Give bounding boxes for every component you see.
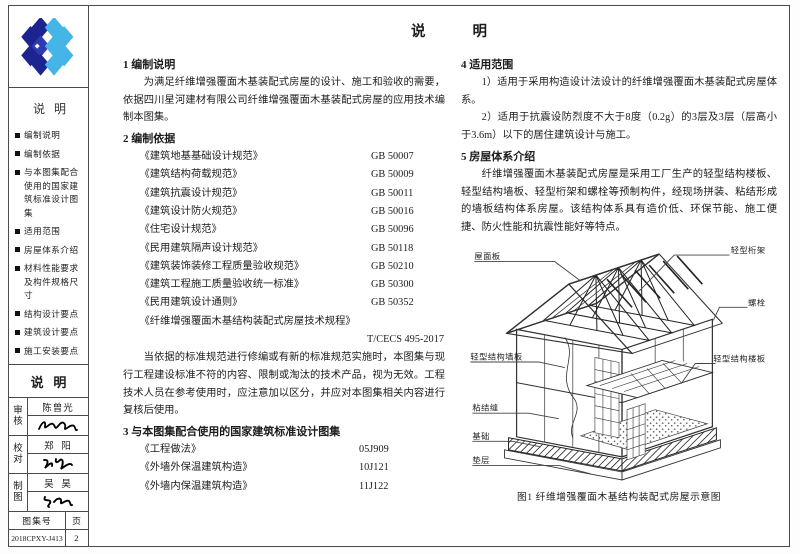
- atlas-number-block: 图集号 页 2018CPXY-J413 2: [9, 512, 88, 546]
- standard-code: GB 50011: [371, 185, 445, 203]
- atlas-number: 2018CPXY-J413: [9, 530, 66, 546]
- toc-item: 适用范围: [15, 225, 85, 239]
- toc-list: 编制说明 编制依据 与本图集配合使用的国家建筑标准设计图集 适用范围 房屋体系介…: [15, 129, 85, 358]
- proofreader-signature: [28, 454, 88, 473]
- standard-code: GB 50007: [371, 148, 445, 166]
- title-block-row-proofreader: 校对 郑 阳: [9, 436, 88, 474]
- standard-code: GB 50016: [371, 203, 445, 221]
- atlas-row-item: 《外墙内保温建筑构造》11J122: [123, 478, 445, 496]
- title-block-row-drafter: 制图 吴 昊: [9, 474, 88, 512]
- section-2-heading: 2 编制依据: [123, 130, 445, 146]
- reference-atlas-list: 《工程做法》05J909 《外墙外保温建筑构造》10J121 《外墙内保温建筑构…: [123, 441, 445, 496]
- wall-stud-grid: [627, 403, 645, 459]
- standard-name: 《民用建筑设计通则》: [123, 294, 242, 312]
- page-title: 说 明: [123, 20, 777, 41]
- section-1-heading: 1 编制说明: [123, 56, 445, 72]
- standard-row: 《建筑抗震设计规范》GB 50011: [123, 185, 445, 203]
- toc-title: 说 明: [15, 100, 85, 117]
- standard-code: GB 50352: [371, 294, 445, 312]
- standard-name: 《民用建筑隔声设计规范》: [123, 240, 263, 258]
- label-foundation: 基础: [472, 430, 489, 440]
- atlas-code: 10J121: [359, 459, 445, 477]
- drafter-name: 吴 昊: [28, 474, 88, 492]
- atlas-code: 05J909: [359, 441, 445, 459]
- handwritten-signature-icon: [40, 494, 76, 510]
- house-diagram-figure: 屋面板 轻型结构墙板 粘结缝 基础 垫层 轻型桁架: [461, 241, 777, 503]
- standard-row: 《民用建筑设计通则》GB 50352: [123, 294, 445, 312]
- toc-item: 房屋体系介绍: [15, 244, 85, 258]
- standard-name: 《住宅设计规范》: [123, 221, 222, 239]
- section-4-heading: 4 适用范围: [461, 56, 777, 72]
- standard-code: GB 50118: [371, 240, 445, 258]
- label-bedding: 垫层: [472, 455, 489, 465]
- atlas-header-row: 图集号 页: [9, 512, 88, 529]
- standard-code: T/CECS 495-2017: [123, 331, 445, 349]
- standard-code: GB 50096: [371, 221, 445, 239]
- title-block-row-reviewer: 审核 陈曾光: [9, 398, 88, 436]
- main-content: 说 明 1 编制说明 为满足纤维增强覆面木基装配式房屋的设计、施工和验收的需要，…: [89, 6, 789, 546]
- label-bolt: 螺栓: [748, 297, 765, 307]
- standard-code: GB 50300: [371, 276, 445, 294]
- standard-code: GB 50210: [371, 258, 445, 276]
- toc-item: 与本图集配合使用的国家建筑标准设计图集: [15, 166, 85, 220]
- standard-name: 《建筑设计防火规范》: [123, 203, 242, 221]
- section-5-heading: 5 房屋体系介绍: [461, 148, 777, 164]
- toc-item: 编制说明: [15, 129, 85, 143]
- standard-name: 《建筑地基基础设计规范》: [123, 148, 263, 166]
- atlas-row-item: 《工程做法》05J909: [123, 441, 445, 459]
- gable-edge: [507, 284, 633, 353]
- standard-row: 《住宅设计规范》GB 50096: [123, 221, 445, 239]
- toc-item: 建筑设计要点: [15, 326, 85, 340]
- handwritten-signature-icon: [36, 418, 80, 434]
- atlas-value-row: 2018CPXY-J413 2: [9, 529, 88, 546]
- page-number: 2: [66, 530, 88, 546]
- standard-row: 《建筑结构荷载规范》GB 50009: [123, 166, 445, 184]
- role-label: 审核: [9, 398, 28, 435]
- drafter-signature: [28, 492, 88, 511]
- page-label: 页: [66, 512, 88, 529]
- standard-row: 《建筑设计防火规范》GB 50016: [123, 203, 445, 221]
- title-block: 审核 陈曾光 校对 郑 阳 制图 吴 昊: [9, 398, 88, 546]
- sheet-title-stamp: 说 明: [9, 364, 88, 398]
- standard-row: 《建筑工程施工质量验收统一标准》GB 50300: [123, 276, 445, 294]
- sidebar: 说 明 编制说明 编制依据 与本图集配合使用的国家建筑标准设计图集 适用范围 房…: [9, 6, 89, 546]
- toc-item: 结构设计要点: [15, 308, 85, 322]
- reviewer-signature: [28, 416, 88, 435]
- cutaway-curve: [565, 337, 577, 437]
- section-1-body: 为满足纤维增强覆面木基装配式房屋的设计、施工和验收的需要，依据四川星河建材有限公…: [123, 74, 445, 127]
- label-wall-panel: 轻型结构墙板: [470, 351, 522, 361]
- section-3-heading: 3 与本图集配合使用的国家建筑标准设计图集: [123, 423, 445, 439]
- label-truss: 轻型桁架: [731, 245, 766, 255]
- standard-name: 《建筑装饰装修工程质量验收规范》: [123, 258, 304, 276]
- atlas-name: 《外墙内保温建筑构造》: [123, 478, 253, 496]
- atlas-code: 11J122: [359, 478, 445, 496]
- toc-item: 材料性能要求及构件规格尺寸: [15, 262, 85, 303]
- right-column: 4 适用范围 1）适用于采用构造设计法设计的纤维增强覆面木基装配式房屋体系。 2…: [461, 53, 777, 503]
- roof: [507, 254, 723, 353]
- standard-row: 《纤维增强覆面木基结构装配式房屋技术规程》: [123, 313, 445, 331]
- label-floor-panel: 轻型结构楼板: [713, 353, 765, 363]
- diamond-cluster-logo-icon: [17, 18, 81, 76]
- table-of-contents: 说 明 编制说明 编制依据 与本图集配合使用的国家建筑标准设计图集 适用范围 房…: [9, 88, 88, 364]
- drawing-sheet: 说 明 编制说明 编制依据 与本图集配合使用的国家建筑标准设计图集 适用范围 房…: [8, 5, 790, 547]
- toc-item: 编制依据: [15, 148, 85, 162]
- roof-battens: [607, 256, 702, 307]
- section-2-note: 当依据的标准规范进行修编或有新的标准规范实施时，本图集与现行工程建设标准不符的内…: [123, 349, 445, 420]
- standard-name: 《建筑工程施工质量验收统一标准》: [123, 276, 304, 294]
- wall-stud-grid: [595, 357, 619, 437]
- left-column: 1 编制说明 为满足纤维增强覆面木基装配式房屋的设计、施工和验收的需要，依据四川…: [123, 53, 445, 503]
- atlas-name: 《外墙外保温建筑构造》: [123, 459, 253, 477]
- handwritten-signature-icon: [40, 456, 76, 472]
- figure-caption: 图1 纤维增强覆面木基结构装配式房屋示意图: [461, 489, 777, 503]
- standard-row: 《建筑地基基础设计规范》GB 50007: [123, 148, 445, 166]
- standard-row: 《民用建筑隔声设计规范》GB 50118: [123, 240, 445, 258]
- role-label: 制图: [9, 474, 28, 511]
- roof-trusses: [544, 260, 695, 340]
- section-4-item: 1）适用于采用构造设计法设计的纤维增强覆面木基装配式房屋体系。: [461, 74, 777, 109]
- proofreader-name: 郑 阳: [28, 436, 88, 454]
- section-4-item: 2）适用于抗震设防烈度不大于8度（0.2g）的3层及3层（层高小于3.6m）以下…: [461, 109, 777, 144]
- standard-name: 《建筑结构荷载规范》: [123, 166, 242, 184]
- label-roof-panel: 屋面板: [474, 251, 500, 261]
- atlas-row-item: 《外墙外保温建筑构造》10J121: [123, 459, 445, 477]
- atlas-name: 《工程做法》: [123, 441, 201, 459]
- role-label: 校对: [9, 436, 28, 473]
- standard-name: 《纤维增强覆面木基结构装配式房屋技术规程》: [123, 313, 356, 331]
- house-axonometric-diagram: 屋面板 轻型结构墙板 粘结缝 基础 垫层 轻型桁架: [461, 241, 777, 487]
- reviewer-name: 陈曾光: [28, 398, 88, 416]
- toc-item: 施工安装要点: [15, 345, 85, 359]
- standard-name: 《建筑抗震设计规范》: [123, 185, 242, 203]
- standard-row: 《建筑装饰装修工程质量验收规范》GB 50210: [123, 258, 445, 276]
- standards-list: 《建筑地基基础设计规范》GB 50007 《建筑结构荷载规范》GB 50009 …: [123, 148, 445, 349]
- section-5-body: 纤维增强覆面木基装配式房屋是采用工厂生产的轻型结构楼板、轻型结构墙板、轻型桁架和…: [461, 166, 777, 237]
- standard-code: GB 50009: [371, 166, 445, 184]
- atlas-no-label: 图集号: [9, 512, 66, 529]
- company-logo: [9, 6, 88, 88]
- label-bond-joint: 粘结缝: [472, 402, 498, 412]
